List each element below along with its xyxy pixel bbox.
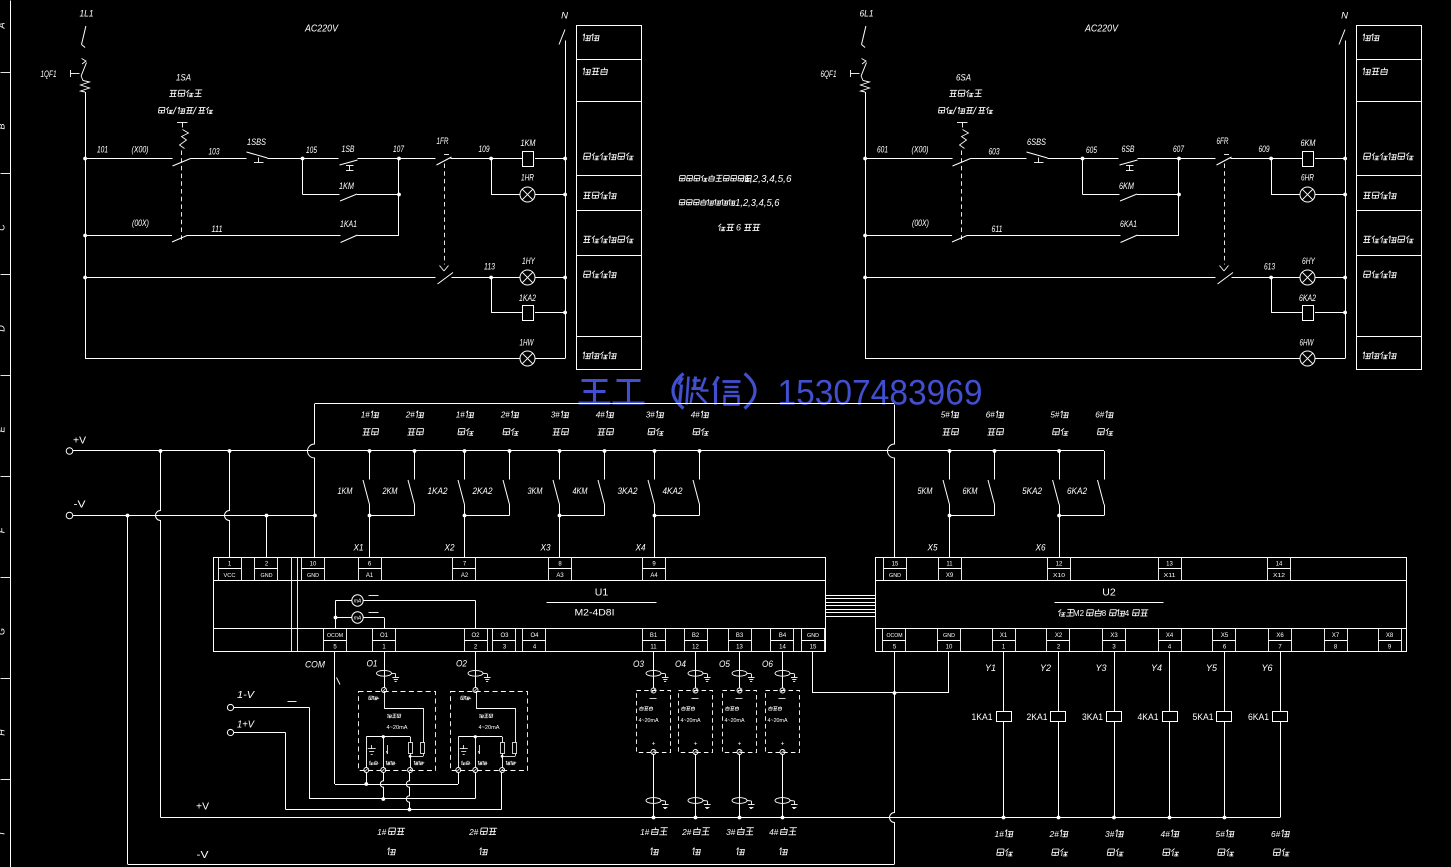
- svg-text:3KA1: 3KA1: [1082, 712, 1103, 723]
- svg-text:1KM: 1KM: [338, 486, 353, 496]
- svg-text:+: +: [738, 741, 742, 748]
- svg-text:OCOM: OCOM: [887, 633, 903, 639]
- svg-text:4~20mA: 4~20mA: [479, 725, 500, 731]
- svg-text:+: +: [422, 761, 425, 766]
- svg-text:4KA1: 4KA1: [1138, 712, 1159, 723]
- svg-text:#: #: [555, 411, 560, 420]
- svg-text:GND: GND: [943, 633, 955, 639]
- svg-text:X3: X3: [540, 543, 552, 553]
- svg-text:6SBS: 6SBS: [1027, 137, 1047, 147]
- svg-text:2KA1: 2KA1: [1027, 712, 1048, 723]
- svg-text:+: +: [377, 696, 380, 702]
- svg-text:U2: U2: [1102, 587, 1116, 599]
- svg-text:N: N: [1341, 11, 1348, 22]
- svg-text:12: 12: [1056, 562, 1063, 568]
- svg-text:4~20mA: 4~20mA: [681, 718, 702, 724]
- svg-text:GND: GND: [261, 573, 273, 579]
- svg-text:1KM: 1KM: [339, 181, 354, 191]
- svg-text:12: 12: [692, 645, 699, 651]
- svg-text:107: 107: [393, 144, 405, 154]
- svg-text:6L1: 6L1: [860, 9, 874, 20]
- svg-text:#: #: [999, 829, 1004, 839]
- svg-text:#: #: [1100, 411, 1105, 420]
- svg-text:(00X): (00X): [132, 218, 149, 228]
- svg-text:611: 611: [992, 224, 1003, 234]
- svg-text:O2: O2: [456, 659, 468, 669]
- svg-text:8: 8: [1102, 609, 1107, 618]
- svg-text:#: #: [1165, 829, 1170, 839]
- svg-text:#: #: [382, 827, 387, 837]
- svg-text:#: #: [945, 411, 950, 420]
- svg-text:X4: X4: [635, 543, 646, 553]
- svg-text:613: 613: [1264, 262, 1276, 272]
- svg-text:A1: A1: [366, 573, 374, 579]
- svg-text:1KA2: 1KA2: [428, 486, 449, 496]
- svg-text:H: H: [0, 729, 7, 736]
- svg-text:COM: COM: [305, 660, 325, 670]
- svg-text:5KA1: 5KA1: [1193, 712, 1214, 723]
- svg-text:#: #: [460, 411, 465, 420]
- svg-text:B1: B1: [650, 633, 658, 639]
- svg-text:14: 14: [779, 645, 786, 651]
- svg-text:111: 111: [212, 224, 223, 234]
- svg-text:1KA1: 1KA1: [340, 219, 357, 229]
- svg-text:#: #: [1276, 829, 1281, 839]
- svg-text:1KA1: 1KA1: [972, 712, 993, 723]
- svg-text:O6: O6: [762, 659, 774, 669]
- svg-text:N: N: [561, 11, 568, 22]
- svg-text:U1: U1: [595, 587, 609, 599]
- svg-text:#: #: [505, 411, 510, 420]
- svg-text:#: #: [600, 411, 605, 420]
- svg-text:1SB: 1SB: [342, 144, 355, 154]
- svg-text:#: #: [1220, 829, 1225, 839]
- svg-text:#: #: [990, 411, 995, 420]
- svg-text:O3: O3: [633, 659, 645, 669]
- svg-text:1FR: 1FR: [437, 136, 449, 146]
- svg-text:+: +: [514, 761, 517, 766]
- svg-text:6KM: 6KM: [1301, 138, 1316, 148]
- svg-text:(X00): (X00): [912, 145, 929, 155]
- svg-text:13: 13: [1166, 562, 1173, 568]
- svg-text:-V: -V: [197, 850, 209, 861]
- svg-text:X1: X1: [353, 543, 364, 553]
- svg-text:105: 105: [306, 145, 318, 155]
- svg-text:+: +: [781, 741, 785, 748]
- svg-text:#: #: [1054, 829, 1059, 839]
- svg-text:E: E: [0, 426, 7, 433]
- svg-text:(X00): (X00): [132, 145, 149, 155]
- svg-text:113: 113: [484, 262, 496, 272]
- svg-text:6: 6: [736, 223, 741, 233]
- svg-text:Y2: Y2: [1040, 663, 1052, 673]
- svg-text:1HR: 1HR: [521, 173, 534, 183]
- svg-text:6SB: 6SB: [1122, 144, 1135, 154]
- svg-text:X6: X6: [1276, 633, 1284, 639]
- svg-text::1,2,3,4,5,6: :1,2,3,4,5,6: [733, 197, 780, 209]
- svg-text:6FR: 6FR: [1217, 136, 1229, 146]
- svg-text:1HY: 1HY: [522, 256, 536, 266]
- svg-text:B3: B3: [736, 633, 744, 639]
- svg-text:A4: A4: [650, 573, 658, 579]
- svg-text:1L1: 1L1: [80, 9, 94, 20]
- svg-text:4KA2: 4KA2: [663, 486, 684, 496]
- svg-text:Y3: Y3: [1096, 663, 1108, 673]
- svg-text:M2-4D8I: M2-4D8I: [575, 608, 615, 619]
- svg-text:103: 103: [209, 147, 221, 157]
- svg-text:X12: X12: [1273, 573, 1285, 579]
- svg-text:Y6: Y6: [1262, 663, 1274, 673]
- svg-text:B: B: [0, 123, 7, 129]
- svg-text:X4: X4: [1166, 633, 1174, 639]
- svg-text:-V: -V: [74, 500, 86, 511]
- svg-text:X9: X9: [946, 573, 954, 579]
- svg-text:Y5: Y5: [1206, 663, 1218, 673]
- svg-text:15307483969: 15307483969: [778, 374, 983, 413]
- svg-text:601: 601: [877, 145, 888, 155]
- svg-text:#: #: [410, 411, 415, 420]
- svg-text:A: A: [0, 22, 7, 29]
- svg-text:6HY: 6HY: [1302, 256, 1316, 266]
- svg-text:X2: X2: [444, 543, 456, 553]
- svg-text:X7: X7: [1332, 633, 1340, 639]
- svg-text:15: 15: [810, 645, 817, 651]
- svg-text:13: 13: [736, 645, 743, 651]
- svg-text:1KA2: 1KA2: [519, 293, 537, 303]
- svg-text:#: #: [695, 411, 700, 420]
- svg-text:O2: O2: [471, 633, 480, 639]
- svg-text:#: #: [731, 827, 736, 837]
- svg-text:X6: X6: [1035, 543, 1047, 553]
- svg-text:mA: mA: [354, 599, 362, 605]
- svg-text:X11: X11: [1164, 573, 1176, 579]
- svg-text:14: 14: [1276, 562, 1283, 568]
- svg-text:+: +: [694, 741, 698, 748]
- svg-text:O1: O1: [367, 659, 378, 669]
- svg-text:#: #: [645, 827, 650, 837]
- svg-text:OCOM: OCOM: [327, 633, 343, 639]
- svg-text:F: F: [0, 527, 7, 533]
- svg-text:4~20mA: 4~20mA: [387, 725, 408, 731]
- svg-text:+V: +V: [196, 802, 209, 813]
- svg-text:O4: O4: [530, 633, 539, 639]
- svg-text:X1: X1: [1000, 633, 1008, 639]
- svg-text:4: 4: [1125, 609, 1130, 618]
- svg-text:X5: X5: [927, 543, 939, 553]
- svg-text:D: D: [0, 325, 7, 332]
- svg-text:605: 605: [1086, 145, 1098, 155]
- svg-text:A2: A2: [461, 573, 469, 579]
- svg-text:AC220V: AC220V: [1084, 24, 1119, 35]
- svg-text:603: 603: [989, 147, 1001, 157]
- svg-text:2KM: 2KM: [382, 486, 398, 496]
- svg-text:+V: +V: [73, 436, 86, 447]
- svg-text:109: 109: [479, 144, 490, 154]
- svg-text:15: 15: [892, 562, 899, 568]
- svg-text:+: +: [652, 741, 656, 748]
- svg-text:4~20mA: 4~20mA: [725, 718, 746, 724]
- svg-text:GND: GND: [807, 633, 819, 639]
- svg-text:A3: A3: [556, 573, 564, 579]
- svg-text:#: #: [1110, 829, 1115, 839]
- svg-text:1HW: 1HW: [520, 338, 535, 348]
- svg-text:4~20mA: 4~20mA: [768, 718, 789, 724]
- svg-text:3KM: 3KM: [528, 486, 543, 496]
- svg-text:O5: O5: [719, 659, 731, 669]
- svg-text:1SBS: 1SBS: [247, 137, 267, 147]
- svg-text:G: G: [0, 628, 7, 635]
- svg-text:10: 10: [310, 562, 317, 568]
- svg-text:6KM: 6KM: [963, 486, 978, 496]
- svg-text:X8: X8: [1386, 633, 1394, 639]
- svg-text:5KA2: 5KA2: [1022, 486, 1043, 496]
- svg-text:#: #: [687, 827, 692, 837]
- svg-text:#: #: [650, 411, 655, 420]
- svg-text:11: 11: [946, 562, 953, 568]
- svg-text:6HW: 6HW: [1300, 338, 1315, 348]
- svg-text:+: +: [469, 696, 472, 702]
- svg-text:6KA1: 6KA1: [1248, 712, 1269, 723]
- svg-text:X2: X2: [1055, 633, 1063, 639]
- svg-text:X3: X3: [1110, 633, 1118, 639]
- svg-text:607: 607: [1173, 144, 1185, 154]
- svg-text:6KA2: 6KA2: [1299, 293, 1317, 303]
- svg-text:6KM: 6KM: [1119, 181, 1134, 191]
- svg-text:6HR: 6HR: [1301, 173, 1314, 183]
- svg-text:M2: M2: [1073, 609, 1085, 618]
- svg-text:6KA2: 6KA2: [1067, 486, 1088, 496]
- svg-text:6SA: 6SA: [956, 73, 971, 84]
- svg-text:#: #: [474, 827, 479, 837]
- svg-text:4KM: 4KM: [573, 486, 588, 496]
- svg-text:(00X): (00X): [912, 218, 929, 228]
- svg-text:6QF1: 6QF1: [821, 69, 837, 79]
- svg-text:1+V: 1+V: [237, 720, 255, 731]
- svg-text:3KA2: 3KA2: [618, 486, 639, 496]
- svg-text:B2: B2: [692, 633, 700, 639]
- svg-text:X5: X5: [1221, 633, 1229, 639]
- svg-text::1,2,3,4,5,6: :1,2,3,4,5,6: [742, 173, 792, 185]
- svg-text:VCC: VCC: [224, 573, 236, 579]
- svg-text:#: #: [774, 827, 779, 837]
- svg-text:11: 11: [650, 645, 657, 651]
- svg-text:#: #: [365, 411, 370, 420]
- svg-text:10: 10: [946, 645, 953, 651]
- svg-text:609: 609: [1259, 144, 1270, 154]
- svg-text:1-V: 1-V: [237, 690, 255, 701]
- svg-text:5KM: 5KM: [918, 486, 933, 496]
- svg-text:O4: O4: [675, 659, 686, 669]
- svg-text:GND: GND: [307, 573, 319, 579]
- svg-text:1QF1: 1QF1: [41, 69, 57, 79]
- svg-text:1SA: 1SA: [176, 73, 191, 84]
- svg-text:C: C: [0, 224, 7, 231]
- svg-text:O1: O1: [380, 633, 389, 639]
- svg-text:mA: mA: [354, 616, 362, 622]
- svg-text:2KA2: 2KA2: [472, 486, 494, 496]
- svg-text:X10: X10: [1053, 573, 1065, 579]
- svg-text:Y4: Y4: [1151, 663, 1162, 673]
- svg-text:1KM: 1KM: [521, 138, 536, 148]
- svg-text:101: 101: [97, 145, 108, 155]
- svg-text:GND: GND: [889, 573, 901, 579]
- svg-text:4~20mA: 4~20mA: [639, 718, 660, 724]
- svg-text:#: #: [1055, 411, 1060, 420]
- svg-text:O3: O3: [500, 633, 509, 639]
- svg-text:Y1: Y1: [985, 663, 996, 673]
- svg-text:B4: B4: [779, 633, 787, 639]
- svg-text:6KA1: 6KA1: [1120, 219, 1137, 229]
- svg-text:AC220V: AC220V: [304, 24, 339, 35]
